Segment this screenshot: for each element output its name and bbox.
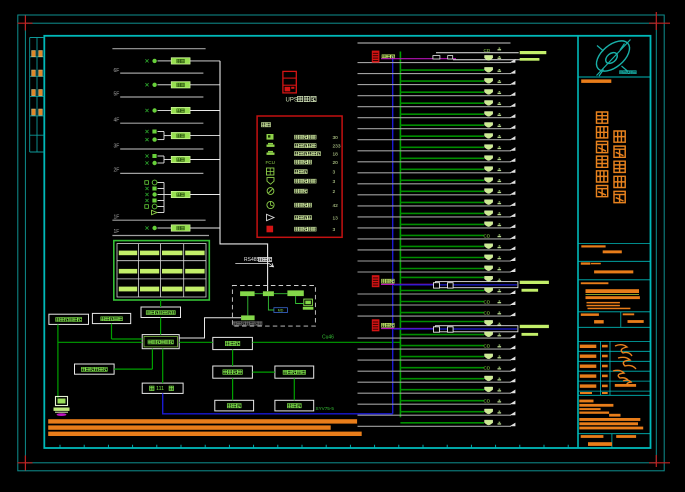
svg-text:SYV75-5: SYV75-5 bbox=[316, 406, 335, 411]
svg-text:1F: 1F bbox=[114, 214, 120, 220]
svg-text:MD: MD bbox=[278, 309, 284, 313]
svg-text:6F: 6F bbox=[114, 68, 120, 74]
svg-text:2: 2 bbox=[333, 189, 336, 195]
svg-text:13: 13 bbox=[333, 215, 339, 221]
svg-text:3F: 3F bbox=[114, 143, 120, 149]
svg-text:Cu46: Cu46 bbox=[322, 335, 334, 341]
svg-text:20: 20 bbox=[333, 160, 339, 166]
svg-text:CD: CD bbox=[484, 366, 491, 371]
svg-text:18: 18 bbox=[333, 151, 339, 157]
svg-text:CD: CD bbox=[484, 48, 491, 53]
svg-text:CD: CD bbox=[484, 311, 491, 316]
svg-text:30: 30 bbox=[333, 135, 339, 141]
svg-text:FCU: FCU bbox=[266, 160, 275, 165]
svg-text:233: 233 bbox=[333, 143, 341, 149]
svg-text:4F: 4F bbox=[114, 117, 120, 123]
svg-text:CD: CD bbox=[484, 233, 491, 238]
svg-text:3: 3 bbox=[333, 227, 336, 233]
svg-text:CD: CD bbox=[484, 299, 491, 304]
svg-text:CD: CD bbox=[484, 399, 491, 404]
svg-text:3: 3 bbox=[333, 179, 336, 185]
svg-text:UPS: UPS bbox=[286, 98, 298, 104]
svg-text:1F: 1F bbox=[114, 229, 120, 235]
svg-text:RS485: RS485 bbox=[244, 257, 260, 263]
svg-text:CD: CD bbox=[484, 344, 491, 349]
svg-text:3: 3 bbox=[333, 169, 336, 175]
svg-text:111: 111 bbox=[156, 386, 164, 392]
svg-text:42: 42 bbox=[333, 203, 339, 209]
svg-text:5F: 5F bbox=[114, 92, 120, 98]
svg-text:2F: 2F bbox=[114, 168, 120, 174]
